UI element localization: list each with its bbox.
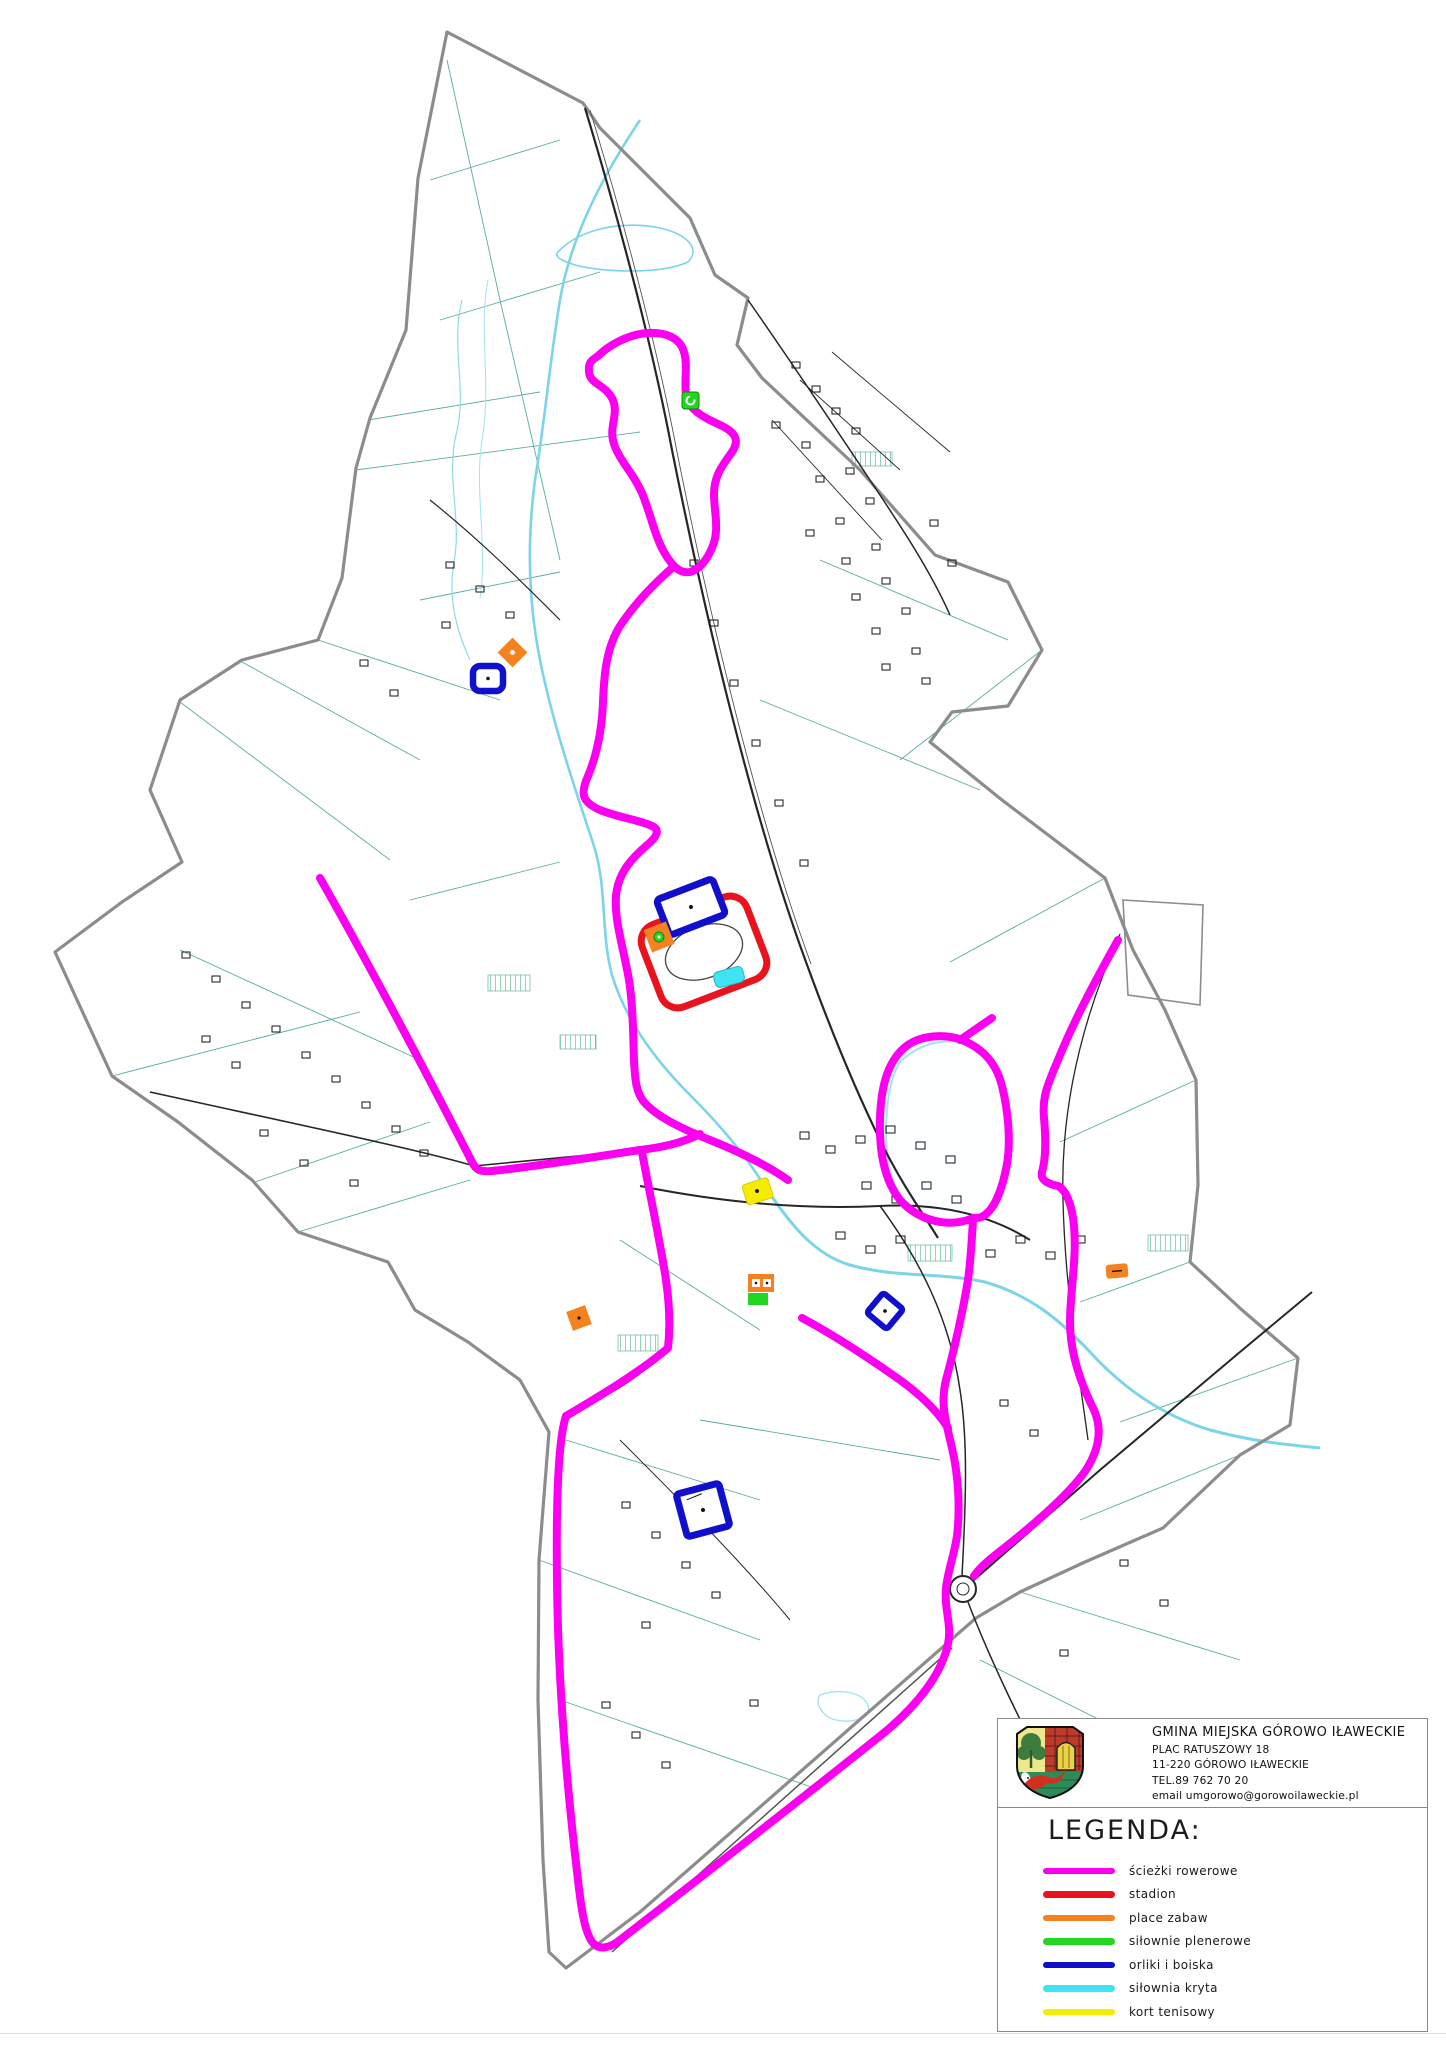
- legend-title: LEGENDA:: [1048, 1815, 1202, 1846]
- bike-path-nw-diagonal: [320, 878, 700, 1171]
- bike-path-town-link: [802, 1318, 948, 1428]
- roundabout: [950, 1576, 976, 1602]
- outdoor-gym-swatch: [1043, 1938, 1115, 1945]
- bike-path-swatch: [1043, 1868, 1115, 1875]
- buildings: [182, 362, 1168, 1768]
- phone-number: TEL.89 762 70 20: [1152, 1775, 1405, 1787]
- legend-row-pitches: orliki i boiska: [998, 1953, 1427, 1977]
- vegetation-strips: [488, 452, 1188, 1351]
- legend-row-stadium: stadion: [998, 1883, 1427, 1907]
- pitch-marker-center: [867, 1293, 904, 1330]
- indoor-gym-swatch: [1043, 1985, 1115, 1992]
- playground-swatch: [1043, 1915, 1115, 1922]
- bike-path-pond-loop: [589, 333, 736, 572]
- bike-path-south-circuit: [557, 1152, 973, 1947]
- playground-marker-west: [566, 1305, 592, 1331]
- roads: [150, 108, 1312, 1952]
- address-section: GMINA MIEJSKA GÓROWO IŁAWECKIE PLAC RATU…: [998, 1719, 1427, 1808]
- legend-row-tennis: kort tenisowy: [998, 2000, 1427, 2024]
- address-city: 11-220 GÓROWO IŁAWECKIE: [1152, 1759, 1405, 1771]
- playground-marker-east: [1105, 1263, 1128, 1279]
- municipal-boundary: [55, 32, 1298, 1968]
- legend-row-indoor-gym: siłownia kryta: [998, 1977, 1427, 2001]
- map-sheet: GMINA MIEJSKA GÓROWO IŁAWECKIE PLAC RATU…: [0, 0, 1446, 2048]
- legend: ścieżki rowerowe stadion place zabaw sił…: [998, 1859, 1427, 2024]
- municipality-name: GMINA MIEJSKA GÓROWO IŁAWECKIE: [1152, 1725, 1405, 1740]
- bike-path-north-tail: [584, 568, 788, 1180]
- playground-marker-nw: [498, 638, 528, 668]
- legend-row-bike-paths: ścieżki rowerowe: [998, 1859, 1427, 1883]
- stadium-swatch: [1043, 1891, 1115, 1898]
- address-block: GMINA MIEJSKA GÓROWO IŁAWECKIE PLAC RATU…: [1152, 1725, 1405, 1802]
- address-street: PLAC RATUSZOWY 18: [1152, 1744, 1405, 1756]
- outdoor-gym-marker-north: [682, 392, 699, 409]
- pitch-swatch: [1043, 1962, 1115, 1969]
- tennis-court-marker: [742, 1177, 774, 1205]
- pitch-marker-southwest: [676, 1483, 730, 1537]
- tennis-swatch: [1043, 2009, 1115, 2016]
- email-address: email umgorowo@gorowoilaweckie.pl: [1152, 1790, 1405, 1802]
- facility-markers: [473, 392, 1129, 1537]
- playground-marker-center: [748, 1274, 774, 1305]
- sheet-edge-line: [0, 2033, 1446, 2034]
- streams: [452, 120, 1320, 1844]
- legend-row-outdoor-gyms: siłownie plenerowe: [998, 1930, 1427, 1954]
- lake: [886, 1041, 1008, 1222]
- pitch-marker-nw: [473, 666, 503, 691]
- coat-of-arms: [1011, 1724, 1089, 1800]
- info-legend-box: GMINA MIEJSKA GÓROWO IŁAWECKIE PLAC RATU…: [997, 1718, 1428, 2032]
- legend-row-playgrounds: place zabaw: [998, 1906, 1427, 1930]
- bike-path-lake-stub: [960, 1018, 992, 1040]
